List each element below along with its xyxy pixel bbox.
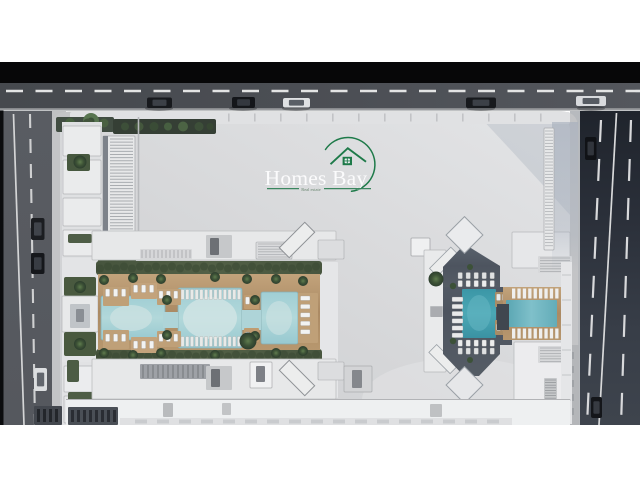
svg-text:Real estate: Real estate xyxy=(301,187,321,192)
